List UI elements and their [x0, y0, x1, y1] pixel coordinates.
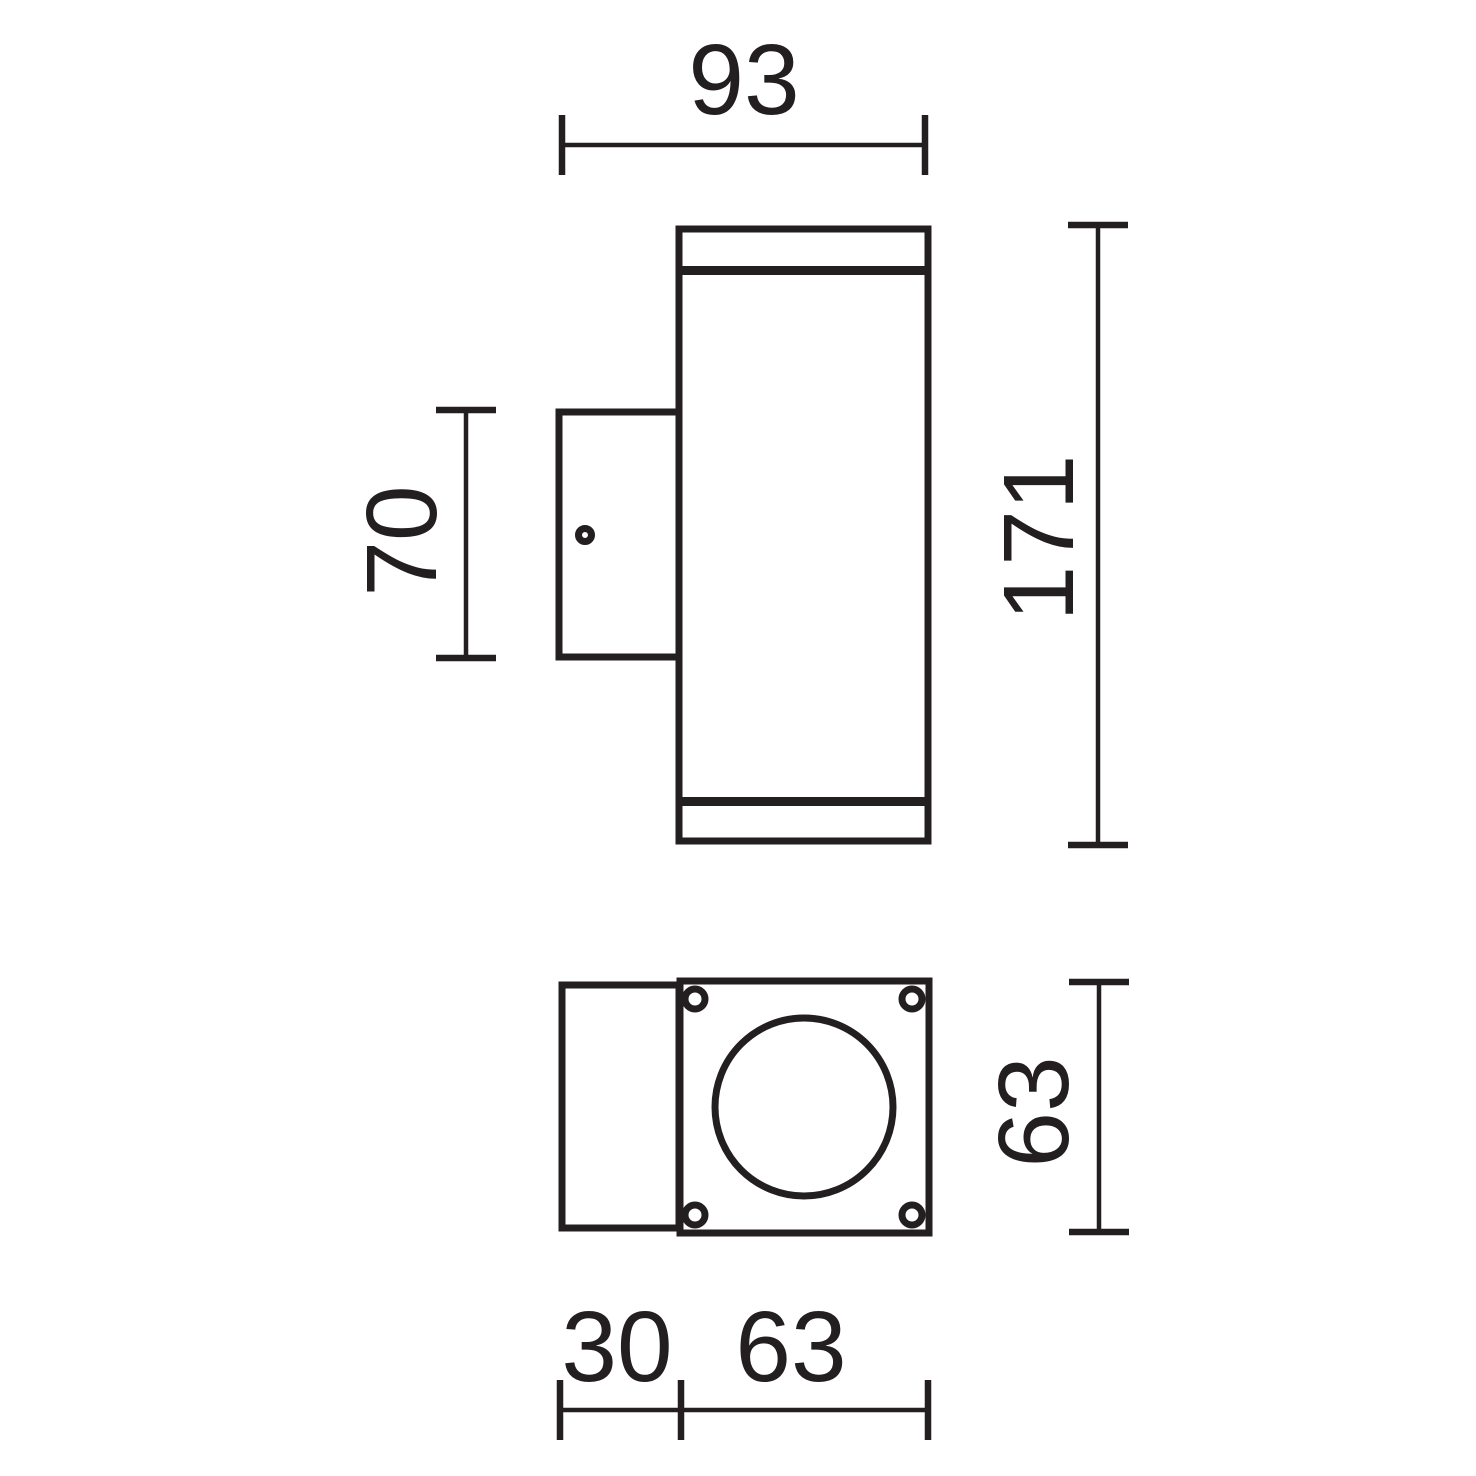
dim-label-plate-width: 63	[735, 1291, 846, 1403]
dim-label-overall-depth: 93	[688, 24, 799, 136]
dim-label-bracket-height: 70	[346, 485, 458, 596]
technical-drawing-page: 93 171 70 63 30 63	[0, 0, 1476, 1476]
bottom-view	[562, 981, 929, 1233]
lamp-body	[679, 229, 928, 841]
dim-label-bracket-depth: 30	[561, 1291, 672, 1403]
dim-label-plate-height: 63	[978, 1056, 1090, 1167]
side-view	[559, 229, 932, 841]
wall-bracket-bottom	[562, 985, 679, 1228]
dim-label-overall-height: 171	[983, 455, 1095, 622]
wall-light-dimension-drawing: 93 171 70 63 30 63	[0, 0, 1476, 1476]
line-work	[436, 115, 1129, 1440]
